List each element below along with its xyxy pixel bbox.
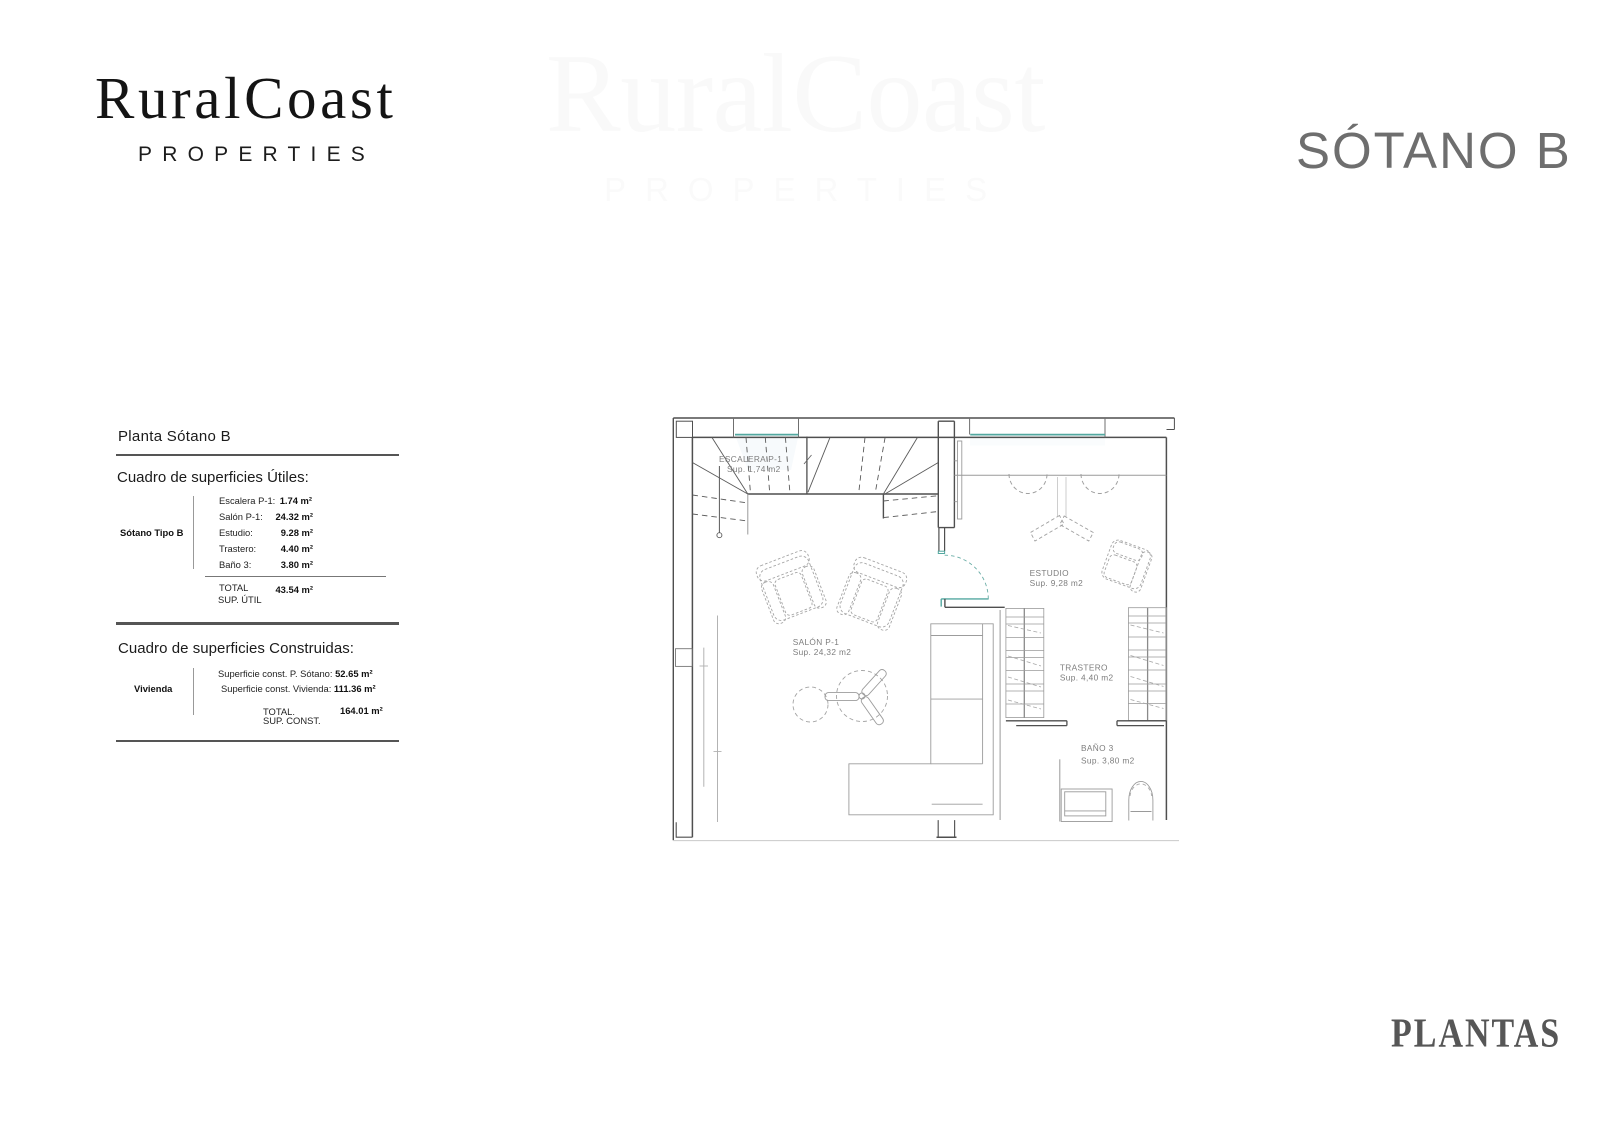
svg-text:ESCALERA P-1: ESCALERA P-1: [719, 454, 782, 464]
svg-text:Sup. 24,32 m2: Sup. 24,32 m2: [793, 647, 852, 657]
svg-text:Sup. 9,28 m2: Sup. 9,28 m2: [1030, 578, 1084, 588]
svg-text:Sup. 4,40 m2: Sup. 4,40 m2: [1060, 673, 1114, 683]
svg-text:TRASTERO: TRASTERO: [1060, 663, 1108, 673]
svg-text:Sup. 3,80 m2: Sup. 3,80 m2: [1081, 755, 1135, 765]
svg-text:BAÑO 3: BAÑO 3: [1081, 743, 1114, 753]
svg-text:ESTUDIO: ESTUDIO: [1030, 568, 1070, 578]
svg-text:SALÓN P-1: SALÓN P-1: [793, 637, 840, 647]
svg-text:Sup. 1,74 m2: Sup. 1,74 m2: [727, 464, 781, 474]
